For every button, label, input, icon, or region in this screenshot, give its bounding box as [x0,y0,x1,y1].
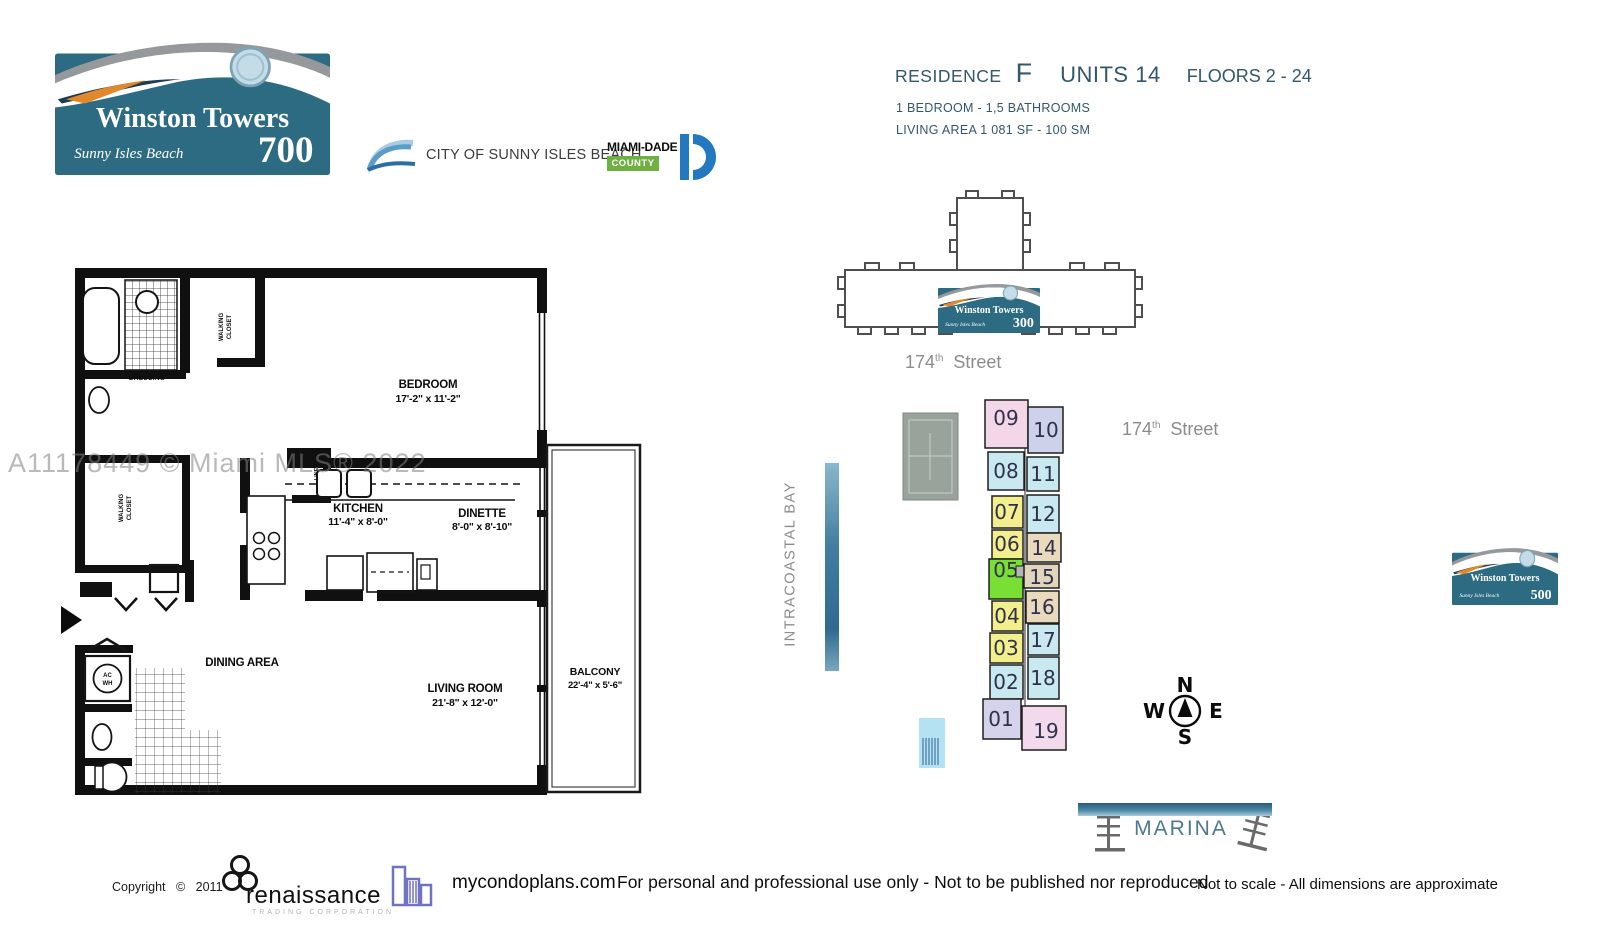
svg-text:19: 19 [1033,719,1058,743]
living-room-dims: 21'-8" x 12'-0" [432,697,498,709]
banquette-seat [327,556,363,590]
unit-01: 01 [983,699,1021,739]
city-of-sunny-isles-beach-logo: CITY OF SUNNY ISLES BEACH [366,136,642,174]
vanity [95,766,103,789]
svg-text:04: 04 [994,604,1019,628]
logo-number: 700 [258,129,314,172]
unit-11: 11 [1027,457,1059,491]
logo-title: Winston Towers [1470,573,1539,584]
unit-12: 12 [1027,495,1059,533]
svg-text:07: 07 [994,500,1019,524]
miami-dade-county-logo: MIAMI-DADE COUNTY [607,131,716,183]
svg-text:09: 09 [993,406,1018,430]
dinette-label: DINETTE [458,508,506,520]
mycondoplans-buildings-icon [390,864,440,910]
balcony-dims: 22'-4" x 5'-6" [568,680,622,691]
miami-dade-d-icon [680,131,716,183]
unit-10: 10 [1028,407,1063,453]
renaissance-tagline: TRADING CORPORATION [252,909,394,916]
intracoastal-bay-label: INTRACOASTAL BAY [783,477,799,652]
unit-16: 16 [1026,591,1059,623]
marina-label: MARINA [1121,817,1241,841]
compass: N S W E [1143,673,1223,749]
marina-bar [1078,803,1272,816]
walking-closet-1-line2: CLOSET [227,315,233,340]
balcony-label: BALCONY [570,666,621,678]
walking-closet-1-line1: WALKING [219,313,225,342]
residence-title-line: RESIDENCE F UNITS 14 FLOORS 2 - 24 [895,58,1312,89]
svg-text:14: 14 [1031,536,1056,560]
svg-text:16: 16 [1029,595,1054,619]
compass-north: N [1177,673,1194,697]
dining-area-label: DINING AREA [205,657,278,669]
svg-text:08: 08 [993,459,1018,483]
entry-arrow [61,606,82,634]
unit-14: 14 [1027,533,1061,562]
windows [540,311,545,768]
compass-south: S [1178,725,1192,749]
bedrooms-spec: 1 BEDROOM - 1,5 BATHROOMS [896,101,1090,115]
unit-06: 06 [992,530,1023,559]
street-label-north: 174thStreet [905,352,1001,373]
svg-text:03: 03 [993,636,1018,660]
unit-stack: 09 08 07 06 05 04 03 02 01 10 11 12 14 1… [983,400,1066,750]
unit-08: 08 [988,452,1024,490]
logo-number: 500 [1531,588,1552,604]
unit-floorplan: BEDROOM 17'-2" x 11'-2" KITCHEN 11'-4" x… [55,260,655,805]
banquette-seat [417,559,437,590]
compass-east: E [1209,699,1223,723]
ac-label: AC [103,673,112,679]
fixtures [83,280,525,793]
dressing-label: DRESSING [129,375,165,382]
unit-02: 02 [990,665,1023,699]
copyright-text: Copyright © 2011 [112,880,223,894]
svg-text:15: 15 [1029,565,1054,589]
mls-watermark: A11178449 © Miami MLS® 2022 [8,448,427,479]
winston-towers-500-logo: Winston Towers Sunny Isles Beach 500 [1452,547,1558,605]
wave-icon [366,136,418,174]
logo-subtitle: Sunny Isles Beach [1459,593,1499,599]
bedroom-dims: 17'-2" x 11'-2" [395,393,460,405]
bathtub [83,288,119,364]
miami-dade-name: MIAMI-DADE [607,140,677,154]
walking-closet-2-line2: CLOSET [127,496,133,521]
floorplan-page: Winston Towers Sunny Isles Beach 700 CIT… [0,0,1600,931]
pool [919,718,945,768]
disclaimer-usage: For personal and professional use only -… [617,872,1208,893]
residence-label: RESIDENCE [895,66,1002,87]
living-area-spec: LIVING AREA 1 081 SF - 100 SM [896,123,1090,137]
svg-text:17: 17 [1030,628,1055,652]
winston-towers-700-logo: Winston Towers Sunny Isles Beach 700 [55,40,330,175]
unit-09: 09 [985,400,1028,448]
intracoastal-bay-bar [825,463,839,671]
toilet [93,724,112,750]
kitchen-label: KITCHEN [333,503,383,515]
logo-subtitle: Sunny Isles Beach [74,146,183,163]
door-chevrons [115,598,177,610]
svg-text:11: 11 [1030,462,1055,486]
unit-18: 18 [1028,657,1059,699]
kitchen-dims: 11'-4" x 8'-0" [328,516,388,528]
svg-text:05: 05 [993,558,1018,582]
svg-text:10: 10 [1033,418,1058,442]
miami-dade-county-label: COUNTY [607,156,659,171]
disclaimer-scale: Not to scale - All dimensions are approx… [1197,876,1498,893]
renaissance-name: renaissance [246,882,381,910]
residence-letter: F [1016,58,1033,89]
logo-subtitle: Sunny Isles Beach [945,322,985,328]
logo-title: Winston Towers [954,305,1023,316]
svg-text:02: 02 [993,670,1018,694]
logo-number: 300 [1013,316,1034,332]
bedroom-label: BEDROOM [399,379,458,391]
compass-needle [1178,698,1193,717]
mycondoplans-site: mycondoplans.com [452,872,616,894]
units-label: UNITS 14 [1060,62,1161,88]
svg-text:01: 01 [988,707,1013,731]
unit-03: 03 [990,633,1023,663]
floors-label: FLOORS 2 - 24 [1187,66,1312,87]
svg-text:06: 06 [994,532,1019,556]
unit-19: 19 [1022,706,1066,750]
wh-label: WH [103,681,113,687]
balcony-outline [547,445,640,792]
walking-closet-2-line1: WALKING [119,494,125,523]
living-room-label: LIVING ROOM [427,683,502,695]
unit-04: 04 [992,601,1023,631]
compass-west: W [1143,699,1165,723]
tennis-court [903,413,958,500]
street-label-east: 174thStreet [1122,419,1218,440]
tiled-floor [135,668,221,793]
svg-text:12: 12 [1030,502,1055,526]
winston-towers-300-logo: Winston Towers Sunny Isles Beach 300 [938,283,1040,333]
dinette-dims: 8'-0" x 8'-10" [452,521,512,533]
unit-05: 05 [989,558,1023,599]
svg-text:18: 18 [1030,666,1055,690]
site-plan: 09 08 07 06 05 04 03 02 01 10 11 12 14 1… [770,185,1330,875]
unit-07: 07 [992,496,1023,528]
bath-sink [89,387,109,413]
unit-17: 17 [1028,624,1059,655]
shower-drain [136,291,158,313]
